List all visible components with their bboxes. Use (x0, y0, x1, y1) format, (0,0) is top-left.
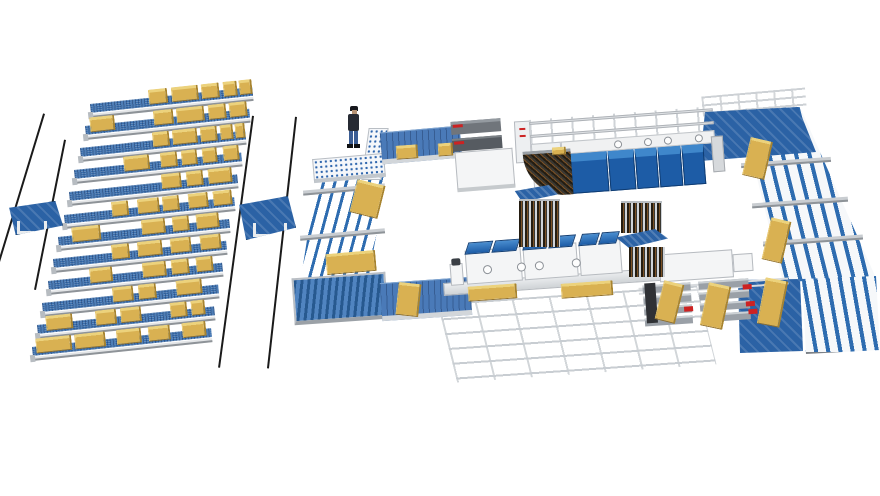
corner-roller-table (291, 272, 388, 325)
packing-machine-hood (658, 249, 734, 282)
cross-red-mark (746, 301, 755, 307)
pallet-stack (180, 149, 198, 166)
pallet-stack (234, 123, 245, 139)
line-pallet (395, 282, 421, 317)
pallet-stack (171, 258, 190, 275)
pallet-stack (208, 167, 233, 184)
storage-row-foot (46, 289, 52, 296)
pallet-stack (115, 328, 142, 346)
pallet-stack (111, 200, 130, 217)
pallet-stack (169, 301, 188, 318)
pallet-stack (148, 88, 169, 105)
pallet-stack (199, 233, 221, 250)
pallet-stack (123, 154, 150, 172)
pallet-stack (89, 266, 113, 283)
column-red-dot-2 (520, 135, 526, 137)
pallet-stack (161, 172, 183, 189)
storage-area (0, 0, 300, 496)
cross-red-mark (743, 284, 752, 290)
pallet-stack (153, 109, 174, 126)
line-pallet (552, 147, 567, 156)
transfer-car-frame (17, 221, 47, 234)
storage-row-foot (83, 134, 89, 141)
pallet-stack (89, 115, 115, 133)
transfer-car-rail-1 (0, 113, 45, 262)
pallet-stack (202, 147, 219, 163)
storage-row-foot (51, 267, 57, 274)
bottom-machine-lid-b (491, 239, 520, 253)
press-module (570, 151, 610, 194)
buffer-stack-2-bottom (629, 247, 665, 277)
packing-machine-box (732, 253, 753, 272)
pallet-stack (45, 313, 73, 331)
press-module (608, 149, 637, 191)
press-module (634, 148, 659, 190)
pallet-stack (170, 236, 192, 253)
cross-red-mark (684, 306, 693, 312)
pallet-stack (141, 218, 167, 235)
pallet-stack (222, 145, 240, 162)
pallet-stack (95, 309, 118, 326)
bottom-machine-lid-a (464, 241, 493, 255)
pallet-stack (176, 105, 205, 123)
pallet-stack (190, 299, 206, 315)
pallet-stack (71, 225, 102, 243)
storage-row-foot (62, 223, 68, 230)
pallet-stack (160, 151, 178, 168)
press-porthole (614, 140, 623, 149)
person-shoe-right (354, 144, 360, 148)
press-porthole (695, 134, 704, 143)
pallet-stack (112, 285, 135, 302)
pallet-stack (162, 195, 181, 212)
buffer-stack-2-top (621, 201, 662, 233)
press-porthole (664, 136, 673, 145)
pallet-stack (137, 240, 163, 257)
pallet-stack (148, 325, 171, 342)
pallet-stack (201, 82, 220, 99)
buffer-stack-1-body (519, 199, 560, 247)
pallet-stack (196, 212, 220, 229)
press-porthole (644, 138, 653, 147)
pallet-stack (200, 126, 218, 143)
cross-red-mark (748, 309, 757, 315)
pallet-stack (141, 261, 167, 278)
pallet-stack (207, 103, 227, 120)
pallet-stack (170, 85, 199, 103)
pallet-stack (138, 283, 157, 300)
pallet-stack (186, 170, 204, 187)
pallet-stack (182, 321, 207, 338)
pallet-stack (74, 331, 106, 349)
column-red-dot-1 (519, 128, 525, 130)
operator-person (344, 106, 362, 152)
pallet-stack (172, 128, 198, 146)
transfer-car-2 (238, 196, 296, 240)
person-torso (348, 114, 359, 131)
storage-row-foot (72, 178, 78, 185)
pallet-stack (195, 256, 214, 273)
pallet-stack (119, 306, 142, 323)
storage-row-foot (78, 156, 84, 163)
pallet-stack (219, 124, 234, 140)
pallet-stack (222, 81, 238, 97)
storage-row-foot (67, 200, 73, 207)
pedestal-unit (449, 263, 464, 286)
pallet-stack (229, 101, 249, 118)
pallet-stack (152, 131, 170, 148)
pallet-stack (187, 192, 209, 209)
pedestal-unit-head (451, 258, 460, 266)
bottom-right-rail-conveyor (802, 276, 880, 356)
storage-row-foot (30, 355, 36, 362)
press-module (657, 146, 683, 188)
pallet-stack (111, 243, 130, 260)
storage-row-foot (56, 245, 62, 252)
line-pallet (396, 144, 419, 160)
person-leg-right (354, 131, 358, 145)
factory-layout-illustration (0, 0, 880, 496)
press-module (681, 144, 706, 186)
line-pallet (325, 250, 377, 275)
person-leg-left (349, 131, 353, 145)
pallet-stack (136, 197, 160, 214)
pallet-stack (238, 79, 253, 95)
line-pallet (438, 142, 454, 156)
pallet-stack (172, 215, 191, 232)
pallet-stack (175, 278, 203, 296)
pallet-stack (213, 189, 233, 206)
person-shoe-left (347, 144, 353, 148)
infeed-machine-body (455, 148, 516, 192)
